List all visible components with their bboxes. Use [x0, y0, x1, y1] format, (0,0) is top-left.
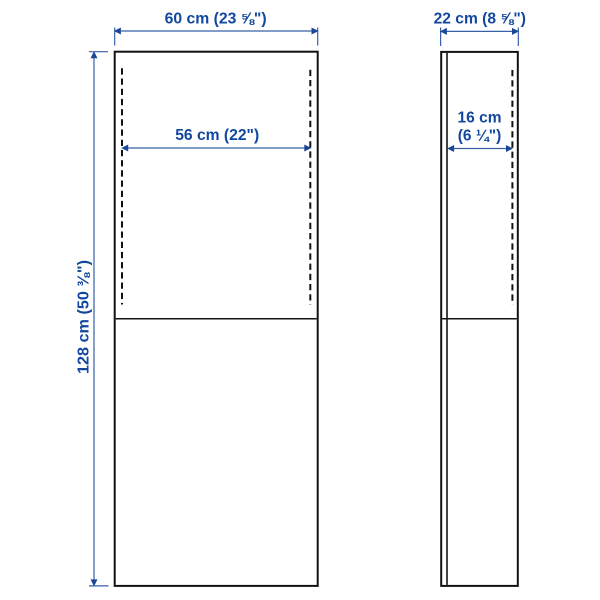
svg-text:16 cm: 16 cm [458, 109, 502, 126]
svg-text:56 cm (22"): 56 cm (22") [175, 127, 259, 144]
svg-text:(6 ¼"): (6 ¼") [458, 127, 502, 144]
svg-text:22 cm (8 ⅝"): 22 cm (8 ⅝") [434, 11, 526, 28]
svg-text:128 cm (50 ⅜"): 128 cm (50 ⅜") [76, 260, 93, 374]
svg-text:60 cm (23 ⅝"): 60 cm (23 ⅝") [165, 11, 267, 28]
